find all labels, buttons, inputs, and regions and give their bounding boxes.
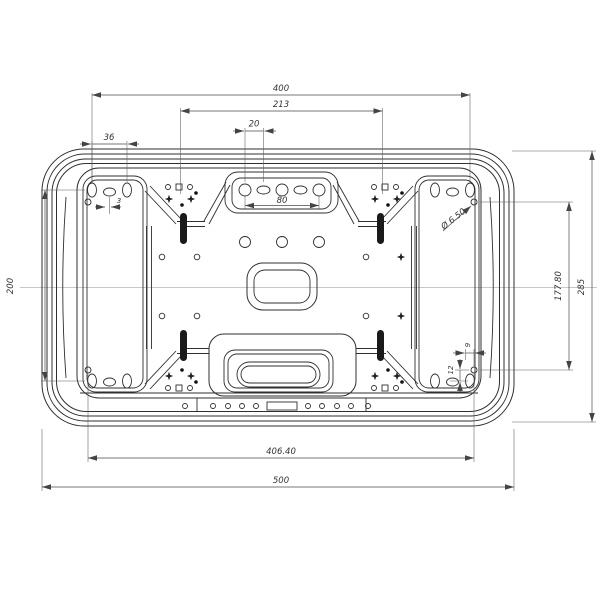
dimension-400: 400 bbox=[92, 84, 470, 184]
wing-holes-top-left bbox=[85, 183, 132, 205]
wing-holes-top-right bbox=[431, 183, 478, 205]
dimension-36: 36 bbox=[80, 133, 139, 182]
center-opening bbox=[247, 263, 317, 310]
dimension-213: 213 bbox=[181, 100, 383, 194]
dim-9-label: 9 bbox=[464, 342, 472, 347]
adjustment-holes bbox=[240, 237, 325, 248]
drawing-sheet: 400 213 20 36 3 80 Ø 6.50 200 bbox=[0, 0, 600, 600]
dim-500-label: 500 bbox=[273, 476, 289, 486]
rail-holes bbox=[183, 404, 371, 409]
left-wing bbox=[83, 176, 147, 392]
dimension-177-80: 177.80 bbox=[480, 202, 573, 370]
right-wing bbox=[415, 176, 479, 392]
dimension-20: 20 bbox=[233, 120, 276, 183]
corner-hardware-top-right bbox=[371, 184, 404, 207]
dim-400-label: 400 bbox=[273, 84, 289, 94]
dimension-500: 500 bbox=[42, 429, 514, 491]
drawing-canvas: 400 213 20 36 3 80 Ø 6.50 200 bbox=[0, 0, 600, 600]
tab-holes bbox=[239, 184, 325, 196]
dimension-3: 3 bbox=[95, 197, 121, 214]
dim-80-label: 80 bbox=[277, 196, 288, 206]
dim-12-label: 12 bbox=[447, 365, 455, 374]
dimension-80: 80 bbox=[245, 196, 319, 209]
dim-406-40-label: 406.40 bbox=[266, 447, 296, 457]
dim-200-label: 200 bbox=[6, 278, 16, 294]
dim-20-label: 20 bbox=[249, 120, 260, 130]
dim-177-80-label: 177.80 bbox=[554, 271, 564, 301]
top-tab bbox=[225, 172, 338, 213]
corner-hardware-top-left bbox=[165, 184, 198, 207]
vesa-slots bbox=[180, 213, 384, 361]
dim-213-label: 213 bbox=[273, 100, 289, 110]
dim-dia-label: Ø 6.50 bbox=[438, 206, 468, 233]
corner-hardware-bottom-left bbox=[165, 368, 198, 391]
dimension-200: 200 bbox=[6, 190, 85, 381]
dimension-hole-dia: Ø 6.50 bbox=[438, 206, 471, 233]
dimension-12: 12 bbox=[447, 359, 469, 392]
wing-holes-bottom-left bbox=[85, 367, 132, 388]
corner-hardware-bottom-right bbox=[371, 368, 404, 391]
label-plate bbox=[267, 402, 297, 410]
bottom-boss bbox=[209, 334, 356, 396]
dim-36-label: 36 bbox=[104, 133, 115, 143]
dim-285-label: 285 bbox=[577, 279, 587, 295]
dim-3-label: 3 bbox=[117, 197, 121, 205]
